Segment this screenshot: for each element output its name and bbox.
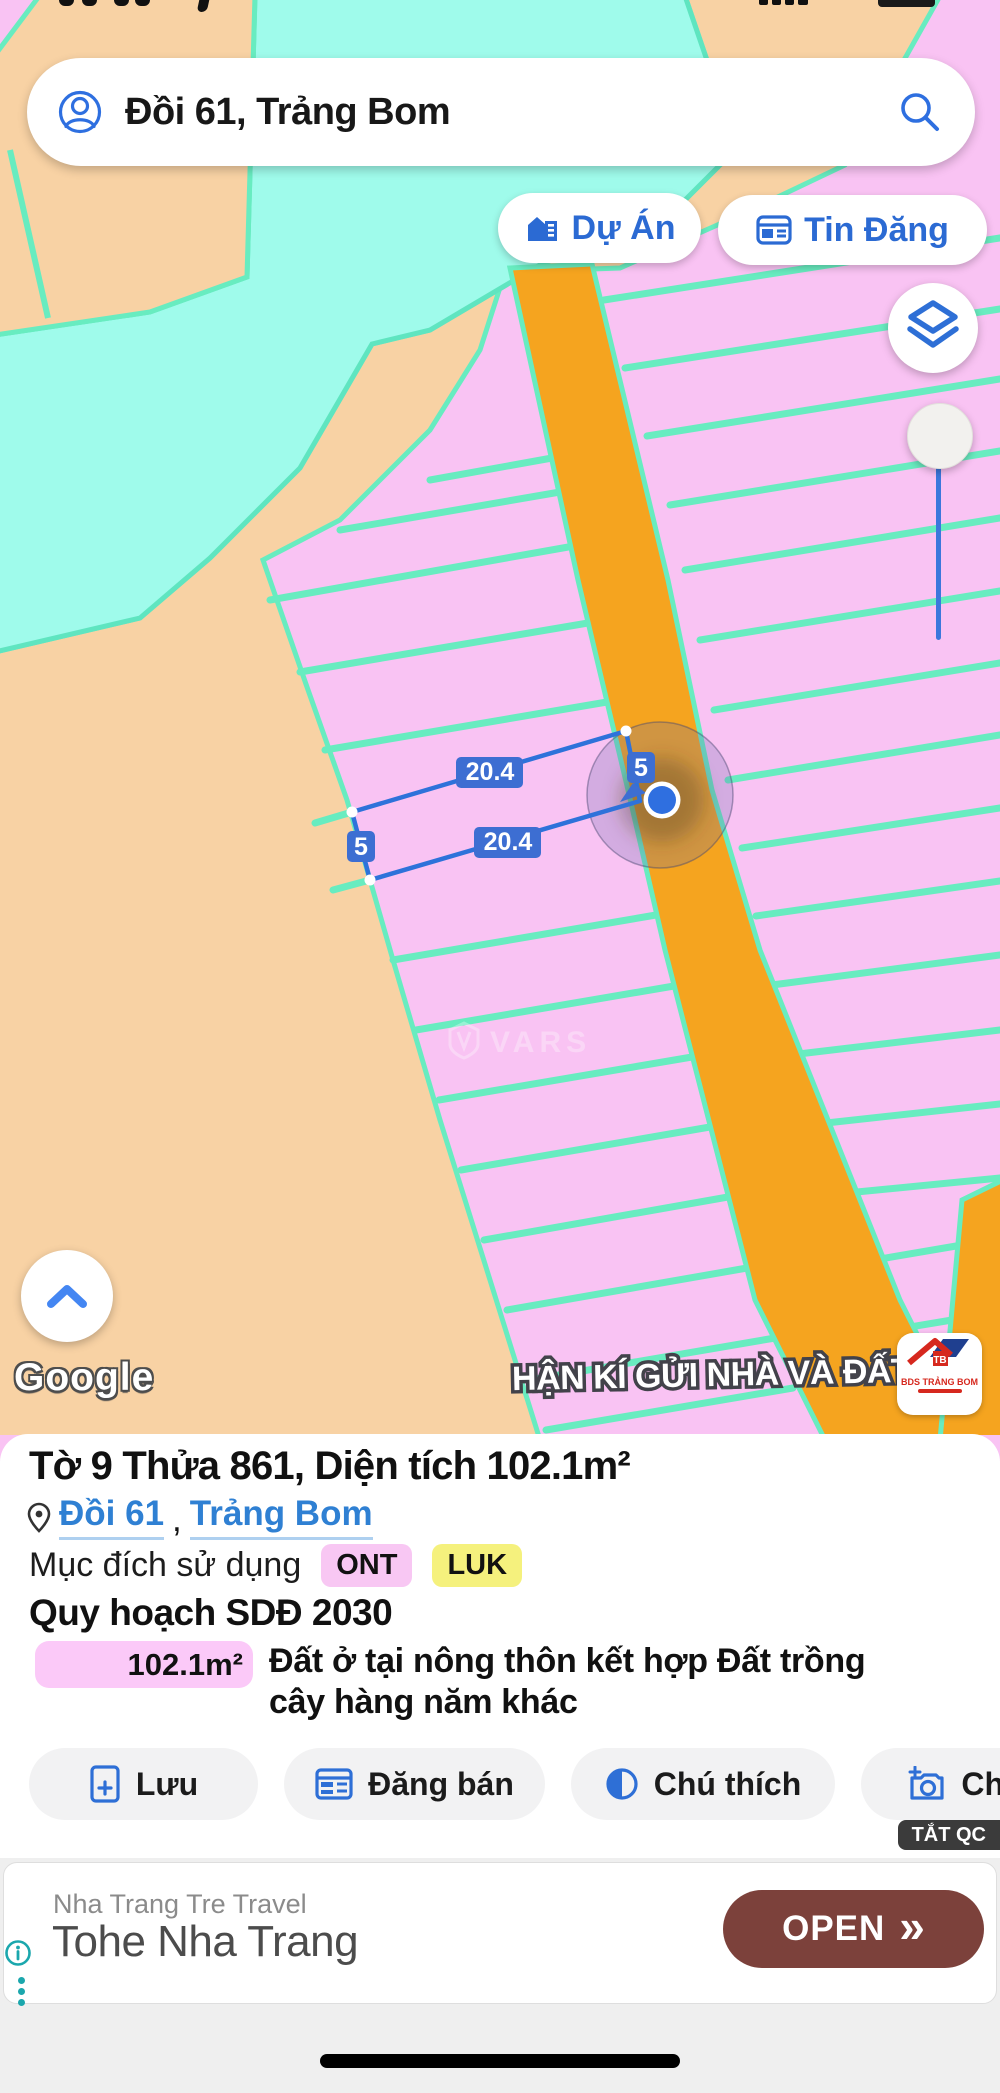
action-button-row: Lưu Đăng bán Chú thích xyxy=(29,1748,1000,1820)
contrast-icon xyxy=(605,1767,639,1801)
tin-dang-label: Tin Đăng xyxy=(804,211,949,250)
plan-heading: Quy hoạch SDĐ 2030 xyxy=(29,1592,392,1634)
close-ad-button[interactable]: TẮT QC xyxy=(898,1820,1000,1850)
measure-bottom: 20.4 xyxy=(484,828,533,856)
zoning-row: 102.1m² Đất ở tại nông thôn kết hợp Đất … xyxy=(35,1641,929,1723)
file-plus-icon xyxy=(89,1765,121,1803)
post-sale-label: Đăng bán xyxy=(368,1766,514,1803)
clock-fragment xyxy=(135,0,150,6)
location-separator: , xyxy=(172,1500,182,1540)
google-logo: Google xyxy=(14,1356,154,1400)
signal-icon xyxy=(772,0,781,5)
clock-fragment xyxy=(59,0,74,6)
camera-plus-icon xyxy=(908,1766,946,1802)
parcel-title: Tờ 9 Thửa 861, Diện tích 102.1m² xyxy=(29,1444,630,1489)
usage-label: Mục đích sử dụng xyxy=(29,1546,301,1585)
partner-logo[interactable]: TB BDS TRẢNG BOM xyxy=(897,1333,982,1415)
vars-watermark-text: VARS xyxy=(490,1026,591,1059)
parcel-corner-dot xyxy=(365,875,376,886)
map-pin-icon xyxy=(27,1502,51,1534)
account-icon[interactable] xyxy=(57,89,103,135)
layers-icon xyxy=(901,299,965,357)
ad-title: Tohe Nha Trang xyxy=(52,1917,358,1967)
tin-dang-button[interactable]: Tin Đăng xyxy=(718,195,987,265)
parcel-info-panel: Tờ 9 Thửa 861, Diện tích 102.1m² Đồi 61 … xyxy=(0,1434,1000,1858)
location-link-district[interactable]: Trảng Bom xyxy=(190,1494,373,1540)
signal-icon xyxy=(798,0,808,5)
capture-button[interactable]: Chụ xyxy=(861,1748,1000,1820)
double-chevron-icon: » xyxy=(899,1899,925,1953)
chevron-up-icon xyxy=(45,1282,89,1310)
du-an-label: Dự Án xyxy=(572,209,676,248)
ad-advertiser: Nha Trang Tre Travel xyxy=(53,1889,307,1920)
search-bar[interactable]: Đồi 61, Trảng Bom xyxy=(27,58,975,166)
zone-area-badge: 102.1m² xyxy=(35,1641,253,1688)
ad-open-label: OPEN xyxy=(782,1909,885,1949)
clock-fragment xyxy=(82,0,97,6)
legend-label: Chú thích xyxy=(654,1766,802,1803)
status-bar-fragment xyxy=(0,0,1000,13)
location-link-ward[interactable]: Đồi 61 xyxy=(59,1494,164,1540)
measure-right: 5 xyxy=(634,754,648,782)
location-dot[interactable] xyxy=(648,786,676,814)
measure-left: 5 xyxy=(354,833,368,861)
save-button[interactable]: Lưu xyxy=(29,1748,258,1820)
save-label: Lưu xyxy=(136,1766,198,1803)
parcel-location-row: Đồi 61 , Trảng Bom xyxy=(27,1494,373,1540)
partner-logo-title: BDS TRẢNG BOM xyxy=(897,1377,982,1387)
legend-button[interactable]: Chú thích xyxy=(571,1748,835,1820)
layers-button[interactable] xyxy=(888,283,978,373)
ad-open-button[interactable]: OPEN » xyxy=(723,1890,984,1968)
partner-logo-tagline xyxy=(918,1389,962,1393)
signal-icon xyxy=(759,0,768,5)
land-usage-row: Mục đích sử dụng ONT LUK xyxy=(29,1544,522,1587)
du-an-button[interactable]: Dự Án xyxy=(498,193,701,263)
caret-fragment xyxy=(197,0,210,12)
parcel-corner-dot xyxy=(347,807,358,818)
partner-house-icon: TB xyxy=(897,1333,982,1371)
collapse-up-button[interactable] xyxy=(21,1250,113,1342)
usage-badge-ont: ONT xyxy=(321,1544,412,1587)
ad-banner[interactable]: Nha Trang Tre Travel Tohe Nha Trang OPEN… xyxy=(3,1862,997,2004)
usage-badge-luk: LUK xyxy=(432,1544,522,1587)
post-sale-button[interactable]: Đăng bán xyxy=(284,1748,545,1820)
home-indicator[interactable] xyxy=(320,2054,680,2068)
battery-icon xyxy=(878,0,935,7)
zoom-slider-track[interactable] xyxy=(936,466,941,640)
ad-menu-dots-icon[interactable] xyxy=(18,1977,26,2010)
newspaper-icon xyxy=(315,1767,353,1801)
listings-icon xyxy=(756,214,792,246)
zoom-slider-knob[interactable] xyxy=(907,403,973,469)
ad-info-icon[interactable] xyxy=(4,1939,32,1967)
parcel-corner-dot xyxy=(621,726,632,737)
zone-description: Đất ở tại nông thôn kết hợp Đất trồng câ… xyxy=(269,1641,929,1723)
signal-icon xyxy=(785,0,794,5)
search-input[interactable]: Đồi 61, Trảng Bom xyxy=(125,91,450,134)
project-building-icon xyxy=(524,210,560,246)
measure-top: 20.4 xyxy=(466,758,515,786)
capture-label: Chụ xyxy=(961,1766,1000,1803)
svg-text:TB: TB xyxy=(933,1355,946,1366)
clock-fragment xyxy=(114,0,129,6)
search-icon[interactable] xyxy=(897,89,943,135)
app-screen: VARS 20.4 5 20.4 5 xyxy=(0,0,1000,2093)
